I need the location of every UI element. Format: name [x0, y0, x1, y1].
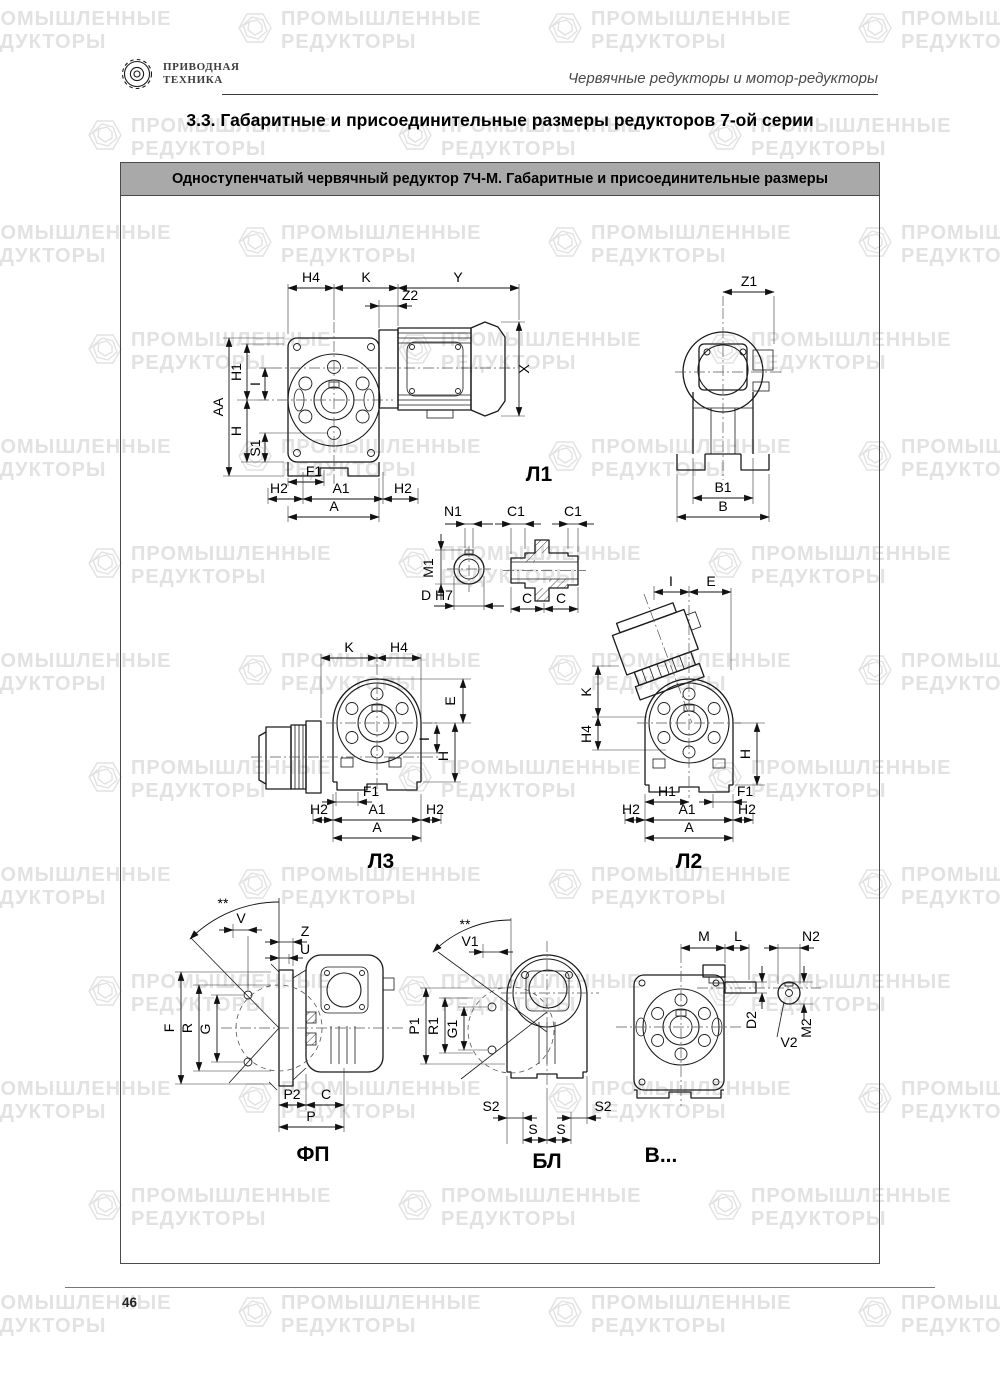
dim-label: B: [718, 498, 727, 514]
dim-label: H2: [622, 801, 640, 817]
hexagon-swirl-icon: [85, 757, 125, 799]
watermark: ПРОМЫШЛЕННЫЕ РЕДУКТОРЫ: [545, 1292, 792, 1338]
dim-label: H2: [426, 801, 444, 817]
logo-line1: ПРИВОДНАЯ: [163, 61, 240, 74]
watermark-line2: РЕДУКТОРЫ: [901, 245, 1000, 268]
watermark-line2: РЕДУКТОРЫ: [0, 1315, 172, 1338]
watermark-line1: ПРОМЫШЛЕННЫЕ: [0, 1292, 172, 1315]
logo-line2: ТЕХНИКА: [163, 74, 240, 87]
watermark-line1: ПРОМЫШЛЕННЫЕ: [901, 1292, 1000, 1315]
dim-label: M: [698, 928, 710, 944]
header-tagline: Червячные редукторы и мотор-редукторы: [568, 70, 878, 87]
watermark-line2: РЕДУКТОРЫ: [591, 1315, 792, 1338]
watermark-line2: РЕДУКТОРЫ: [0, 31, 172, 54]
watermark: ПРОМЫШЛЕННЫЕ РЕДУКТОРЫ: [235, 1292, 482, 1338]
dim-label: **: [218, 895, 229, 911]
dim-label: H2: [270, 480, 288, 496]
watermark-line1: ПРОМЫШЛЕННЫЕ: [901, 1078, 1000, 1101]
dim-label: F1: [306, 463, 323, 479]
dim-label: M2: [798, 1018, 814, 1038]
drawing-rear-view: Z1 B1 B: [675, 273, 783, 522]
dim-label: H1: [228, 363, 244, 381]
dim-label: K: [361, 269, 371, 285]
dim-label: V: [236, 910, 246, 926]
dim-label: E: [706, 573, 715, 589]
dim-label: C: [556, 590, 566, 606]
watermark-line2: РЕДУКТОРЫ: [901, 887, 1000, 910]
watermark-line2: РЕДУКТОРЫ: [281, 31, 482, 54]
dim-label: AA: [210, 397, 226, 416]
drawings-panel: Одноступенчатый червячный редуктор 7Ч-М.…: [120, 162, 880, 1264]
dim-label: V2: [780, 1034, 797, 1050]
dim-label: R1: [425, 1017, 441, 1035]
dim-label: V1: [461, 933, 478, 949]
watermark-line1: ПРОМЫШЛЕННЫЕ: [591, 1292, 792, 1315]
dim-label: L: [734, 928, 742, 944]
dim-label: P: [306, 1108, 315, 1124]
gear-logo-icon: [118, 55, 156, 93]
watermark-line1: ПРОМЫШЛЕННЫЕ: [901, 222, 1000, 245]
watermark-line1: ПРОМЫШЛЕННЫЕ: [281, 1292, 482, 1315]
dim-label: U: [300, 941, 310, 957]
dim-label: A: [329, 498, 339, 514]
watermark-line2: РЕДУКТОРЫ: [901, 673, 1000, 696]
dim-label: A1: [332, 480, 349, 496]
technical-drawings: H4 K Y Z2 X AA H1 I H: [121, 196, 877, 1261]
dim-label: H4: [390, 639, 408, 655]
dim-label: A: [372, 819, 382, 835]
hexagon-swirl-icon: [545, 8, 585, 50]
dim-label: H2: [310, 801, 328, 817]
dim-label: R: [179, 1023, 195, 1033]
footer-rule: [65, 1287, 935, 1288]
dim-label: F1: [737, 783, 754, 799]
dim-label: C: [321, 1086, 331, 1102]
figure-label-l3: Л3: [368, 850, 394, 873]
dim-label: H4: [578, 725, 594, 743]
company-logo: ПРИВОДНАЯ ТЕХНИКА: [118, 55, 240, 93]
dim-label: N1: [444, 503, 462, 519]
page-number: 46: [122, 1295, 137, 1310]
drawing-l1: H4 K Y Z2 X AA H1 I H: [210, 269, 553, 522]
dim-label: D2: [743, 1011, 759, 1029]
hexagon-swirl-icon: [235, 8, 275, 50]
drawing-fp: ** V Z U F R G: [161, 895, 406, 1166]
dim-label: H: [435, 751, 451, 761]
watermark-line2: РЕДУКТОРЫ: [591, 31, 792, 54]
dim-label: C1: [564, 503, 582, 519]
hexagon-swirl-icon: [855, 1292, 895, 1334]
dim-label: H2: [738, 801, 756, 817]
figure-label-v: В...: [645, 1144, 678, 1167]
dim-label: G1: [444, 1019, 460, 1038]
dim-label: Z: [301, 923, 310, 939]
dim-label: **: [460, 916, 471, 932]
dim-label: I: [416, 737, 432, 741]
figure-label-bl: БЛ: [532, 1150, 561, 1173]
drawing-l3: K H4 E I H F1 H2 A1 H2: [251, 639, 471, 873]
dim-label: B1: [714, 479, 731, 495]
watermark-line2: РЕДУКТОРЫ: [901, 31, 1000, 54]
drawing-l2: I E K H4 H H1 F1 H2: [578, 573, 765, 873]
dim-label: H1: [658, 783, 676, 799]
drawing-bore-detail: N1 M1 D H7: [420, 503, 504, 610]
watermark-line2: РЕДУКТОРЫ: [751, 138, 952, 161]
hexagon-swirl-icon: [545, 1292, 585, 1334]
figure-label-l1: Л1: [526, 463, 553, 486]
watermark: ПРОМЫШЛЕННЫЕ РЕДУКТОРЫ: [0, 1292, 172, 1338]
dim-label: S: [528, 1121, 537, 1137]
hexagon-swirl-icon: [85, 971, 125, 1013]
dim-label: F1: [363, 783, 380, 799]
dim-label: P2: [283, 1086, 300, 1102]
watermark-line1: ПРОМЫШЛЕННЫЕ: [901, 650, 1000, 673]
watermark-line1: ПРОМЫШЛЕННЫЕ: [901, 436, 1000, 459]
figure-label-l2: Л2: [676, 850, 702, 873]
header-rule: [222, 94, 878, 95]
dim-label: S1: [247, 439, 263, 456]
dim-label: A: [684, 819, 694, 835]
dim-label: Z2: [402, 287, 419, 303]
watermark: ПРОМЫШЛЕННЫЕ РЕДУКТОРЫ: [855, 1292, 1000, 1338]
dim-label: P1: [406, 1017, 422, 1034]
dim-label: S: [556, 1121, 565, 1137]
section-title: 3.3. Габаритные и присоединительные разм…: [0, 110, 1000, 131]
panel-title: Одноступенчатый червячный редуктор 7Ч-М.…: [121, 163, 879, 196]
dim-label: I: [669, 573, 673, 589]
dim-label: E: [442, 696, 458, 705]
dim-label: F: [161, 1024, 177, 1033]
dim-label: S2: [594, 1098, 611, 1114]
watermark: ПРОМЫШЛЕННЫЕ РЕДУКТОРЫ: [545, 8, 792, 54]
watermark-line1: ПРОМЫШЛЕННЫЕ: [0, 8, 172, 31]
watermark-line1: ПРОМЫШЛЕННЫЕ: [591, 8, 792, 31]
watermark: ПРОМЫШЛЕННЫЕ РЕДУКТОРЫ: [855, 8, 1000, 54]
dim-label: C: [522, 590, 532, 606]
hexagon-swirl-icon: [85, 329, 125, 371]
watermark-line2: РЕДУКТОРЫ: [131, 138, 332, 161]
dim-label: H4: [302, 269, 320, 285]
drawing-v: M L N2 D2 M2 V2 В...: [616, 928, 821, 1167]
dim-label: C1: [507, 503, 525, 519]
dim-label: G: [197, 1024, 213, 1035]
dim-label: M1: [420, 558, 436, 578]
dim-label: K: [578, 687, 594, 697]
watermark-line1: ПРОМЫШЛЕННЫЕ: [901, 8, 1000, 31]
figure-label-fp: ФП: [296, 1143, 329, 1166]
watermark-line1: ПРОМЫШЛЕННЫЕ: [901, 864, 1000, 887]
hexagon-swirl-icon: [85, 1185, 125, 1227]
drawing-bl: ** V1 P1 R1 G1 S2: [406, 916, 612, 1173]
watermark: ПРОМЫШЛЕННЫЕ РЕДУКТОРЫ: [0, 8, 172, 54]
watermark-line2: РЕДУКТОРЫ: [441, 138, 642, 161]
dim-label: D H7: [421, 587, 453, 603]
dim-label: H: [228, 426, 244, 436]
dim-label: N2: [802, 928, 820, 944]
dim-label: A1: [678, 801, 695, 817]
hexagon-swirl-icon: [85, 543, 125, 585]
drawing-hollow-shaft: C1 C1 C C: [495, 503, 594, 613]
watermark-line2: РЕДУКТОРЫ: [901, 1315, 1000, 1338]
watermark-line2: РЕДУКТОРЫ: [901, 1101, 1000, 1124]
watermark-line2: РЕДУКТОРЫ: [901, 459, 1000, 482]
dim-label: H2: [394, 480, 412, 496]
hexagon-swirl-icon: [235, 1292, 275, 1334]
dim-label: S2: [482, 1098, 499, 1114]
dim-label: Z1: [741, 273, 758, 289]
hexagon-swirl-icon: [855, 8, 895, 50]
dim-label: H: [737, 749, 753, 759]
watermark: ПРОМЫШЛЕННЫЕ РЕДУКТОРЫ: [235, 8, 482, 54]
watermark-line1: ПРОМЫШЛЕННЫЕ: [281, 8, 482, 31]
dim-label: Y: [453, 269, 463, 285]
dim-label: X: [516, 364, 532, 374]
dim-label: K: [344, 639, 354, 655]
dim-label: A1: [368, 801, 385, 817]
dim-label: I: [247, 382, 263, 386]
watermark-line2: РЕДУКТОРЫ: [281, 1315, 482, 1338]
